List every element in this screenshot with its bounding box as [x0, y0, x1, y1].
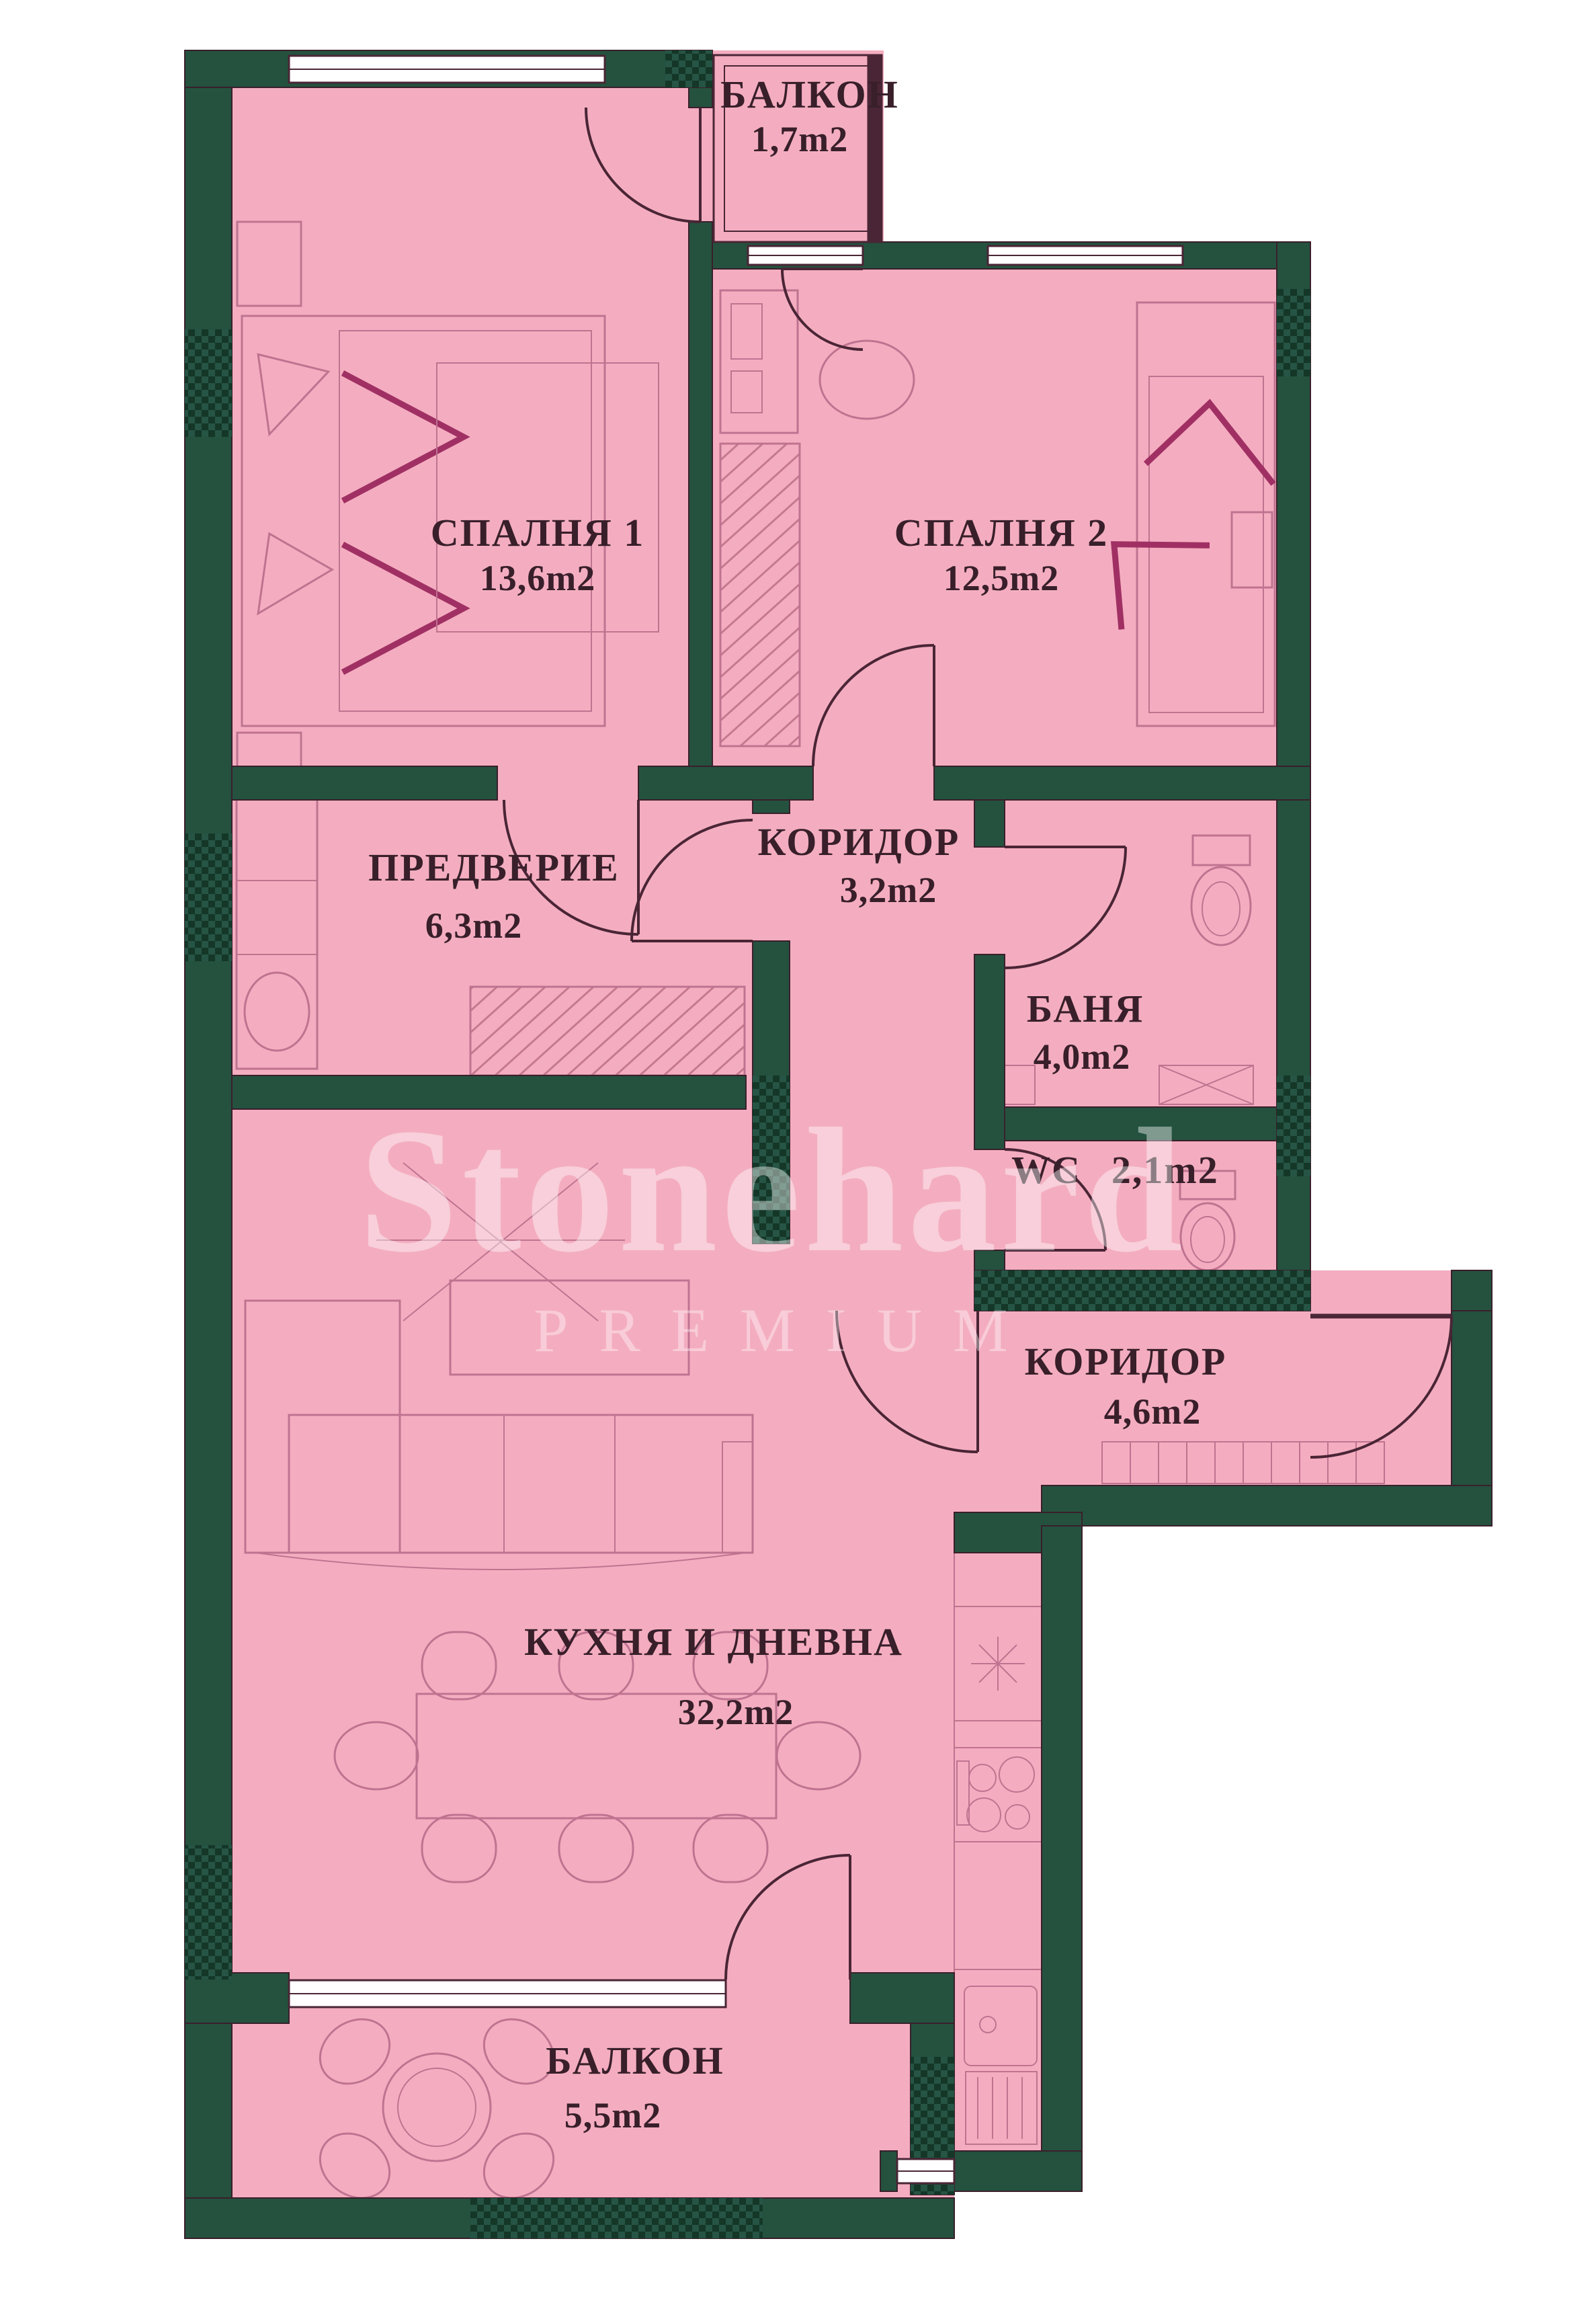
wall-bedroom1-right	[689, 87, 712, 108]
wall-entry-bottom	[1042, 1486, 1492, 1526]
watermark-premium: PREMIUM	[534, 1296, 1038, 1365]
room-label-balcony-top: БАЛКОН	[720, 73, 899, 116]
wall-entry-corner	[1452, 1270, 1492, 1311]
watermark-brand: Stonehard	[359, 1092, 1187, 1289]
wall-kitchen-right	[1042, 1526, 1082, 2191]
room-label-corridor-upper: КОРИДОР	[758, 820, 960, 864]
wall-kitchen-bottom	[954, 2151, 1082, 2191]
wardrobe	[720, 444, 800, 746]
floor-plan-drawing: БАЛКОН 1,7m2 СПАЛНЯ 1 13,6m2 СПАЛНЯ 2 12…	[0, 0, 1596, 2319]
room-label-corridor-entry: КОРИДОР	[1025, 1340, 1227, 1383]
room-area-corridor-entry: 4,6m2	[1104, 1391, 1201, 1432]
wall-living-bottom	[850, 1973, 954, 2023]
window	[748, 246, 863, 265]
room-area-bathroom: 4,0m2	[1034, 1036, 1130, 1077]
room-label-bedroom1: СПАЛНЯ 1	[431, 511, 645, 555]
room-area-corridor-upper: 3,2m2	[840, 870, 937, 910]
wall-corridor-left	[753, 800, 790, 813]
wall-kitchen-bottom	[880, 2151, 897, 2191]
room-area-balcony-top: 1,7m2	[751, 119, 848, 159]
room-area-bedroom1: 13,6m2	[480, 558, 595, 598]
room-label-bathroom: БАНЯ	[1027, 987, 1144, 1030]
room-area-anteroom: 6,3m2	[425, 905, 522, 946]
wall-bedrooms-divider	[232, 766, 497, 800]
room-label-balcony-bottom: БАЛКОН	[546, 2039, 724, 2082]
hall-closet	[470, 987, 745, 1075]
room-area-kitchen-living: 32,2m2	[678, 1692, 794, 1732]
window	[897, 2159, 954, 2183]
room-label-bedroom2: СПАЛНЯ 2	[894, 511, 1109, 555]
room-label-anteroom: ПРЕДВЕРИЕ	[368, 846, 620, 889]
room-area-balcony-bottom: 5,5m2	[564, 2095, 661, 2135]
wall-bedrooms-divider	[638, 766, 813, 800]
window	[988, 246, 1183, 265]
window	[289, 56, 605, 83]
wall-bath-right	[1277, 800, 1310, 1270]
wall-bedroom1-right	[689, 222, 712, 766]
floor-plan-page: БАЛКОН 1,7m2 СПАЛНЯ 1 13,6m2 СПАЛНЯ 2 12…	[0, 0, 1596, 2319]
room-area-bedroom2: 12,5m2	[943, 558, 1059, 598]
room-label-kitchen-living: КУХНЯ И ДНЕВНА	[524, 1620, 903, 1664]
wall-bathroom-left	[974, 800, 1005, 847]
fridge-icon	[971, 1637, 1025, 1691]
wall-bedrooms-divider	[934, 766, 1310, 800]
window	[289, 1980, 726, 2007]
wall-living-bottom	[185, 1973, 289, 2023]
